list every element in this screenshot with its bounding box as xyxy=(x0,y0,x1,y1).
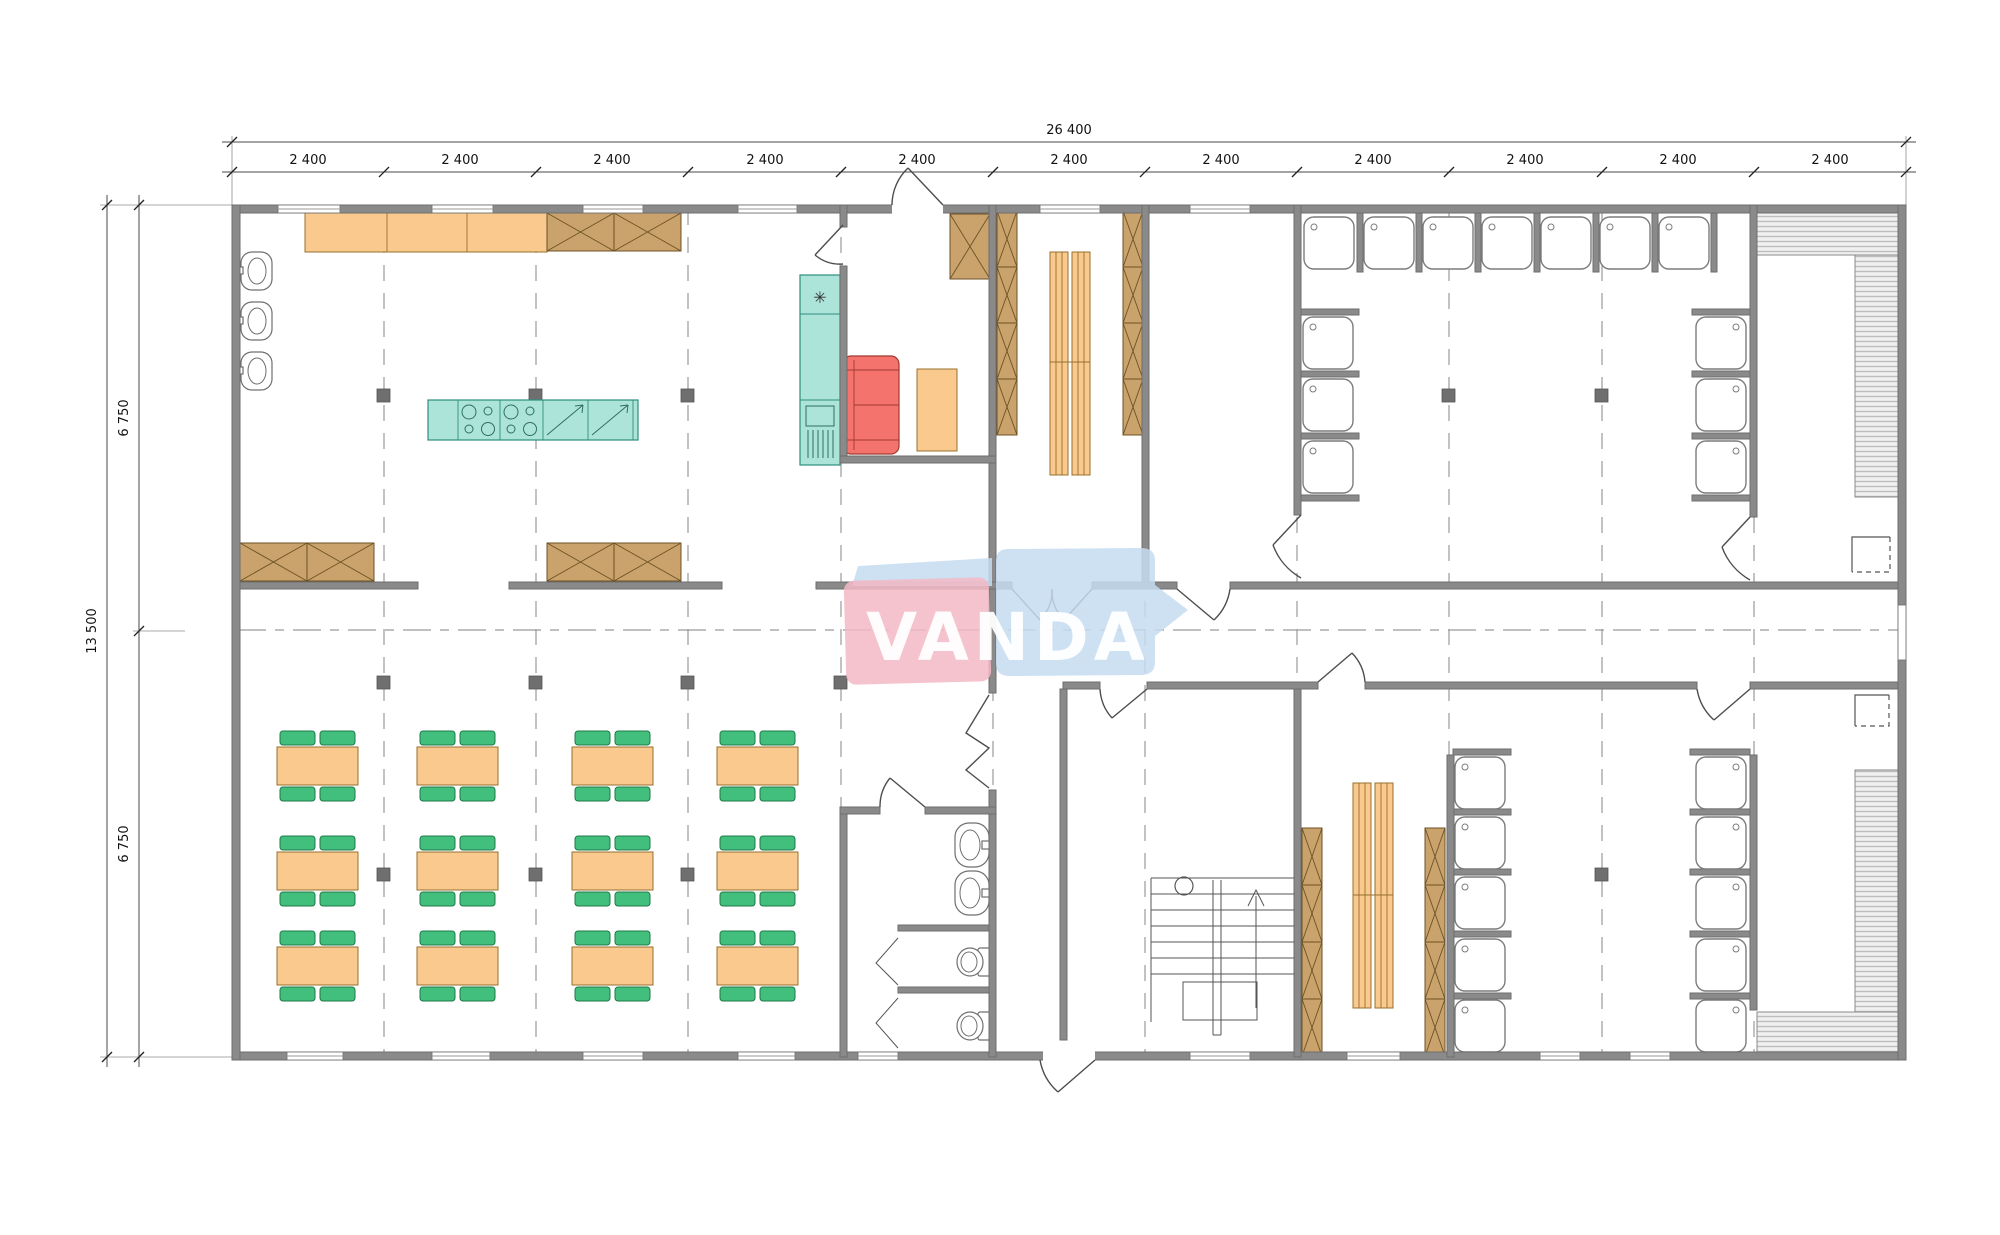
shower-stall xyxy=(1696,317,1746,369)
shower-stall xyxy=(1303,379,1353,431)
fridge-freezer-column: ✳ xyxy=(800,275,840,465)
door-staircase xyxy=(1100,689,1147,718)
door-wc xyxy=(880,778,925,807)
dim-half-top: 6 750 xyxy=(117,399,132,436)
door-kitchen-staffroom xyxy=(815,225,843,264)
svg-text:2 400: 2 400 xyxy=(441,153,478,168)
shelf-unit xyxy=(1123,379,1143,435)
shower-stall xyxy=(1659,217,1709,269)
locker xyxy=(1425,885,1445,942)
dining-hall xyxy=(277,731,798,1001)
dining-table-group xyxy=(417,931,498,1001)
freezer-snowflake-icon: ✳ xyxy=(813,288,826,307)
shower-stall xyxy=(1541,217,1591,269)
locker xyxy=(1302,885,1322,942)
staff-room xyxy=(843,214,990,454)
shower-stall xyxy=(1696,877,1746,929)
table xyxy=(917,369,957,451)
shower-stall xyxy=(1696,1000,1746,1052)
shower-stall xyxy=(1482,217,1532,269)
locker xyxy=(1425,828,1445,885)
shelf-unit xyxy=(997,323,1017,379)
door-sauna-top xyxy=(1722,517,1750,580)
shower-stall xyxy=(1696,441,1746,493)
shower-stall xyxy=(1600,217,1650,269)
svg-text:2 400: 2 400 xyxy=(1354,153,1391,168)
kitchen-counter xyxy=(305,213,547,252)
door-changing-bottom xyxy=(1318,653,1365,682)
dining-table-group xyxy=(572,836,653,906)
module-labels: 2 400 2 400 2 400 2 400 2 400 2 400 2 40… xyxy=(289,153,1848,168)
shower-stall xyxy=(1423,217,1473,269)
svg-text:2 400: 2 400 xyxy=(1506,153,1543,168)
sauna-bench xyxy=(1855,770,1898,1017)
shelf-unit xyxy=(1123,267,1143,323)
door-opening-top xyxy=(892,204,943,214)
locker xyxy=(1302,942,1322,999)
storage-cabinet xyxy=(614,213,681,251)
wash-basin xyxy=(955,871,990,915)
dining-table-group xyxy=(417,836,498,906)
logo-wordmark: VANDA xyxy=(866,599,1150,676)
stair-up-arrow xyxy=(1248,890,1264,1008)
storage-cabinet xyxy=(950,214,990,279)
dim-half-bottom: 6 750 xyxy=(117,825,132,862)
dining-table-group xyxy=(277,836,358,906)
dining-table-group xyxy=(417,731,498,801)
shelf-unit xyxy=(1123,211,1143,267)
shower-stall xyxy=(1304,217,1354,269)
staircase xyxy=(1151,877,1294,1035)
dining-table-group xyxy=(717,931,798,1001)
door-dressing-top xyxy=(1177,589,1230,620)
wc-room xyxy=(876,823,991,1048)
wash-basin xyxy=(236,302,272,340)
changing-room-bottom xyxy=(1302,783,1445,1056)
wash-basin xyxy=(236,352,272,390)
shower-stall xyxy=(1455,817,1505,869)
newel-post xyxy=(1175,877,1193,895)
locker xyxy=(1302,828,1322,885)
svg-text:2 400: 2 400 xyxy=(593,153,630,168)
door-staffroom-exterior xyxy=(892,168,943,205)
dining-table-group xyxy=(572,731,653,801)
dining-table-group xyxy=(717,836,798,906)
svg-text:2 400: 2 400 xyxy=(289,153,326,168)
locker xyxy=(1425,999,1445,1056)
floor-plan-drawing: 26 400 2 400 2 400 2 400 2 400 2 400 2 4… xyxy=(0,0,2000,1235)
shower-stall xyxy=(1455,757,1505,809)
locker xyxy=(1302,999,1322,1056)
dim-total-width: 26 400 xyxy=(1046,123,1092,138)
toilet xyxy=(957,1012,991,1040)
bifold-door-vestibule xyxy=(966,695,989,788)
svg-text:2 400: 2 400 xyxy=(898,153,935,168)
floor-plan-page: 26 400 2 400 2 400 2 400 2 400 2 400 2 4… xyxy=(0,0,2000,1235)
sauna-bench xyxy=(1757,1012,1898,1052)
dining-table-group xyxy=(277,731,358,801)
exterior-wall-left xyxy=(232,205,240,1060)
dining-table-group xyxy=(277,931,358,1001)
sauna-heater xyxy=(1852,537,1890,572)
svg-text:2 400: 2 400 xyxy=(1202,153,1239,168)
pass-cabinet xyxy=(307,543,374,581)
window-right-wall xyxy=(1898,605,1906,660)
svg-text:2 400: 2 400 xyxy=(1659,153,1696,168)
shower-stall xyxy=(1696,817,1746,869)
shelf-unit xyxy=(997,379,1017,435)
shower-room-top xyxy=(1301,213,1750,501)
sauna-top xyxy=(1757,213,1898,572)
pass-cabinet xyxy=(614,543,681,581)
shower-stall xyxy=(1696,379,1746,431)
dim-total-height: 13 500 xyxy=(85,608,100,654)
wash-basin xyxy=(236,252,272,290)
sauna-bench xyxy=(1855,255,1898,497)
shower-stall xyxy=(1303,441,1353,493)
shower-stall xyxy=(1455,1000,1505,1052)
shower-stall xyxy=(1303,317,1353,369)
sauna-bottom xyxy=(1757,695,1898,1052)
storage-cabinet xyxy=(547,213,614,251)
door-main-entrance xyxy=(1040,1060,1095,1092)
shelf-unit xyxy=(997,211,1017,267)
storage-room xyxy=(997,211,1143,475)
vanda-logo: VANDA xyxy=(844,548,1188,685)
svg-text:2 400: 2 400 xyxy=(746,153,783,168)
shower-stall xyxy=(1696,757,1746,809)
sofa xyxy=(843,356,899,454)
door-opening-bottom xyxy=(1043,1051,1095,1061)
shower-stall xyxy=(1455,939,1505,991)
sauna-bench xyxy=(1757,213,1898,255)
shower-stall xyxy=(1696,939,1746,991)
svg-text:2 400: 2 400 xyxy=(1811,153,1848,168)
door-shower-bottom xyxy=(1697,689,1750,720)
dining-table-group xyxy=(717,731,798,801)
sauna-heater xyxy=(1855,695,1889,726)
double-bench xyxy=(1353,783,1393,1008)
shelf-unit xyxy=(1123,323,1143,379)
shower-stall xyxy=(1455,877,1505,929)
svg-text:2 400: 2 400 xyxy=(1050,153,1087,168)
shelf-unit xyxy=(997,267,1017,323)
cubicle-doors xyxy=(876,938,898,1048)
locker xyxy=(1425,942,1445,999)
shower-stall xyxy=(1364,217,1414,269)
double-rack xyxy=(1050,252,1090,475)
toilet xyxy=(957,948,991,976)
pass-cabinet xyxy=(240,543,307,581)
pass-cabinet xyxy=(547,543,614,581)
wash-basin xyxy=(955,823,990,867)
dining-table-group xyxy=(572,931,653,1001)
cooking-island xyxy=(428,400,638,440)
